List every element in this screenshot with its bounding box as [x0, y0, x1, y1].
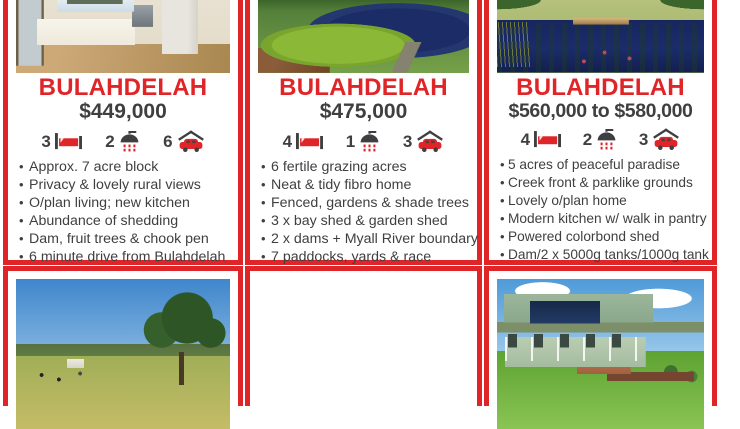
car-icon — [177, 130, 205, 153]
cars-count: 6 — [163, 132, 172, 152]
listing-card-5-partial — [245, 266, 482, 406]
baths-count: 2 — [105, 132, 114, 152]
feature-item: 6 minute drive from Bulahdelah — [18, 248, 234, 266]
baths-count: 1 — [346, 132, 355, 152]
listing-card-3: BULAHDELAH $560,000 to $580,000 4 2 3 5 … — [484, 0, 717, 265]
property-photo-living-room — [258, 279, 469, 429]
property-photo-kitchen — [16, 0, 230, 73]
feature-item: 6 fertile grazing acres — [260, 158, 473, 176]
cars-stat: 3 — [639, 128, 680, 151]
baths-count: 2 — [583, 130, 592, 150]
listing-stats: 4 1 3 — [260, 129, 467, 155]
feature-item: Dam, fruit trees & chook pen — [18, 230, 234, 248]
listing-card-2: BULAHDELAH $475,000 4 1 3 6 fertile graz… — [245, 0, 482, 265]
cars-count: 3 — [639, 130, 648, 150]
cars-stat: 6 — [163, 130, 204, 153]
feature-item: Privacy & lovely rural views — [18, 176, 234, 194]
feature-list: 5 acres of peaceful paradise Creek front… — [499, 156, 708, 264]
feature-item: Fenced, gardens & shade trees — [260, 194, 473, 212]
beds-stat: 3 — [41, 132, 81, 152]
cars-count: 3 — [403, 132, 412, 152]
listing-location: BULAHDELAH — [8, 76, 238, 100]
shower-icon — [596, 129, 617, 151]
listing-card-4-partial — [3, 266, 243, 406]
beds-count: 4 — [283, 132, 292, 152]
feature-list: 6 fertile grazing acres Neat & tidy fibr… — [260, 158, 473, 266]
bed-icon — [55, 133, 82, 150]
feature-item: 5 acres of peaceful paradise — [499, 156, 708, 174]
car-icon — [652, 128, 680, 151]
listing-stats: 4 2 3 — [499, 127, 702, 153]
property-photo-house — [497, 279, 704, 429]
beds-stat: 4 — [283, 132, 323, 152]
baths-stat: 1 — [346, 131, 380, 153]
property-photo-pond — [497, 0, 704, 73]
listing-location: BULAHDELAH — [250, 76, 477, 100]
listing-card-1: BULAHDELAH $449,000 3 2 6 Approx. 7 acre… — [3, 0, 243, 265]
property-photo-dam — [258, 0, 469, 73]
listing-price: $449,000 — [8, 101, 238, 123]
feature-item: Creek front & parklike grounds — [499, 174, 708, 192]
listing-price: $560,000 to $580,000 — [489, 101, 712, 121]
property-photo-pasture — [16, 279, 230, 429]
listing-stats: 3 2 6 — [18, 129, 228, 155]
car-icon — [416, 130, 444, 153]
listing-location: BULAHDELAH — [489, 76, 712, 100]
beds-count: 4 — [521, 130, 530, 150]
cars-stat: 3 — [403, 130, 444, 153]
feature-item: Approx. 7 acre block — [18, 158, 234, 176]
baths-stat: 2 — [583, 129, 617, 151]
bed-icon — [534, 131, 561, 148]
feature-item: Neat & tidy fibro home — [260, 176, 473, 194]
feature-item: 2 x dams + Myall River boundary — [260, 230, 473, 248]
feature-item: Modern kitchen w/ walk in pantry — [499, 210, 708, 228]
beds-count: 3 — [41, 132, 50, 152]
feature-item: 7 paddocks, yards & race — [260, 248, 473, 266]
feature-item: Powered colorbond shed — [499, 228, 708, 246]
listing-price: $475,000 — [250, 101, 477, 123]
bed-icon — [296, 133, 323, 150]
feature-item: Lovely o/plan home — [499, 192, 708, 210]
feature-list: Approx. 7 acre block Privacy & lovely ru… — [18, 158, 234, 266]
beds-stat: 4 — [521, 130, 561, 150]
feature-item: Abundance of shedding — [18, 212, 234, 230]
listing-card-6-partial — [484, 266, 717, 406]
shower-icon — [359, 131, 380, 153]
feature-item: 3 x bay shed & garden shed — [260, 212, 473, 230]
shower-icon — [119, 131, 140, 153]
baths-stat: 2 — [105, 131, 139, 153]
feature-item: Dam/2 x 5000g tanks/1000g tank — [499, 246, 708, 264]
feature-item: O/plan living; new kitchen — [18, 194, 234, 212]
